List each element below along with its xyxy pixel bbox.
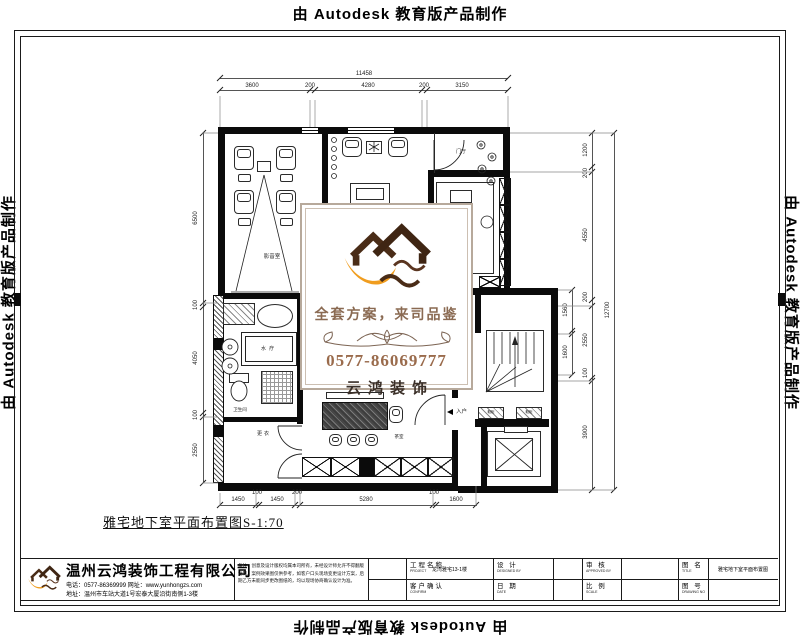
dim-text: 3600 — [239, 83, 265, 89]
theater-recliner — [234, 146, 254, 170]
titleblock-line — [20, 600, 778, 601]
registration-mark-right — [778, 293, 785, 306]
dim-line — [572, 290, 573, 375]
stone-tea-table — [322, 402, 388, 430]
armchair — [342, 137, 362, 157]
wall — [218, 293, 303, 299]
stairwell — [486, 330, 544, 392]
dim-text: 11458 — [351, 71, 377, 77]
theater-recliner — [276, 146, 296, 170]
room-label-entry: 入户 — [456, 407, 467, 415]
company-logo — [339, 216, 434, 300]
dim-line — [614, 133, 615, 490]
titleblock-line — [493, 558, 494, 600]
fireplace-inner — [356, 188, 384, 200]
field-sub: SCALE — [586, 590, 607, 594]
tv-unit — [450, 190, 472, 203]
tea-chair — [365, 434, 378, 446]
dim-text: 100 — [193, 292, 199, 318]
cad-drawing-page: 由 Autodesk 教育版产品制作 由 Autodesk 教育版产品制作 由 … — [0, 0, 800, 640]
wall — [218, 127, 225, 295]
company-phone: 电话：0577-86369999 网址：www.yunhongzs.com — [66, 580, 202, 589]
dim-text: 1600 — [563, 339, 569, 365]
wall — [475, 295, 481, 333]
field-sub: CONFIRM — [410, 590, 444, 594]
dim-text: 5280 — [353, 497, 379, 503]
dim-text: 100 — [421, 490, 447, 496]
field-label: 比 例 — [586, 583, 607, 590]
wall — [218, 417, 303, 422]
titleblock-line — [553, 558, 554, 600]
dim-text: 100 — [244, 490, 270, 496]
ottoman — [238, 218, 251, 226]
watermark-inner-frame: 全套方案，来司品鉴 0577-86069777 云鸿装饰 — [305, 208, 468, 385]
titleblock-line — [621, 558, 622, 600]
registration-mark-left — [14, 293, 21, 306]
elevator-car — [495, 438, 533, 471]
field-sub: TITLE — [682, 569, 703, 573]
room-label-tea: 茶室 — [384, 434, 414, 440]
tea-chair — [329, 434, 342, 446]
field-scale: 比 例 SCALE — [586, 583, 607, 594]
side-table — [366, 141, 382, 154]
dim-text: 200 — [411, 83, 437, 89]
field-project-value: 龙湾雅宅13-1楼 — [406, 566, 493, 573]
field-label: 审 核 — [586, 562, 611, 569]
shower-floor — [261, 371, 293, 404]
autodesk-banner-top: 由 Autodesk 教育版产品制作 — [0, 3, 800, 24]
toilet-tank — [229, 373, 249, 383]
dim-line — [220, 78, 508, 79]
wall — [213, 425, 224, 437]
dim-line — [203, 133, 204, 483]
laundry-counter — [223, 303, 255, 325]
flourish-ornament — [317, 326, 457, 348]
watermark-box: 全套方案，来司品鉴 0577-86069777 云鸿装饰 — [300, 203, 473, 390]
cabinet-x — [401, 457, 428, 477]
shoe-cabinet-label: 鞋柜 — [478, 410, 504, 415]
field-title: 图 名 TITLE — [682, 562, 703, 573]
field-drawing-no: 图 号 DRAWING NO — [682, 583, 705, 594]
theater-recliner — [276, 190, 296, 214]
field-sub: DRAWING NO — [682, 590, 705, 594]
room-label-bath: 卫生间 — [220, 407, 260, 413]
titleblock-line — [406, 558, 407, 600]
ottoman — [238, 174, 251, 182]
projector — [257, 161, 271, 172]
dim-text: 1450 — [225, 497, 251, 503]
dim-text: 200 — [284, 490, 310, 496]
dim-line — [220, 90, 508, 91]
dim-text: 12700 — [605, 297, 611, 323]
dim-text: 100 — [583, 360, 589, 386]
dim-text: 4050 — [193, 345, 199, 371]
field-sub: APPROVED BY — [586, 569, 611, 573]
elevator-door — [504, 426, 528, 433]
titleblock-line — [20, 558, 778, 559]
titleblock-line — [582, 558, 583, 600]
titleblock-line — [368, 558, 369, 600]
wall — [428, 170, 510, 177]
wall — [551, 288, 558, 493]
room-label-spa: 水疗 — [253, 345, 285, 352]
company-address: 地址：温州市车站大道1号宏泰大厦沿街南侧1-3楼 — [66, 589, 198, 598]
dim-text: 3900 — [583, 419, 589, 445]
watermark-slogan: 全套方案，来司品鉴 — [306, 304, 467, 324]
entry-arrow-icon — [447, 409, 453, 415]
dim-line — [220, 505, 477, 506]
wall — [470, 288, 558, 295]
dim-text: 100 — [193, 402, 199, 428]
field-label: 客户确认 — [410, 583, 444, 590]
shoe-cabinet-label: 鞋柜 — [516, 410, 542, 415]
window-symbol — [348, 127, 394, 134]
field-approver: 审 核 APPROVED BY — [586, 562, 611, 573]
field-label: 设 计 — [497, 562, 521, 569]
room-label-dressing: 更衣 — [248, 430, 280, 437]
dim-text: 4550 — [583, 222, 589, 248]
ottoman — [280, 218, 293, 226]
window-symbol — [302, 127, 318, 134]
wall — [322, 133, 328, 205]
drawing-caption: 雅宅地下室平面布置图S-1:70 — [103, 512, 284, 531]
field-designer: 设 计 DESIGNED BY — [497, 562, 521, 573]
dim-text: 1600 — [443, 497, 469, 503]
cabinet-x — [302, 457, 331, 477]
partition-line — [434, 133, 435, 173]
field-sub: DATE — [497, 590, 518, 594]
room-label-foyer: 门厅 — [446, 148, 476, 155]
bathtub — [257, 304, 293, 328]
field-sub: DESIGNED BY — [497, 569, 521, 573]
dim-text: 2550 — [193, 437, 199, 463]
field-date: 日 期 DATE — [497, 583, 518, 594]
tea-chair — [347, 434, 360, 446]
field-label: 图 名 — [682, 562, 703, 569]
watermark-brand: 云鸿装饰 — [306, 377, 467, 398]
watermark-phone: 0577-86069777 — [306, 351, 467, 371]
ottoman — [280, 174, 293, 182]
dim-text: 200 — [583, 160, 589, 186]
dim-text: 4280 — [355, 83, 381, 89]
field-title-value: 雅宅地下室平面布置图 — [708, 566, 778, 573]
titleblock-notes: 备注：创意及设计版权均属本司所有，未经设计师允许不得翻版复制。案例效果图仅供参考… — [238, 562, 364, 598]
dim-text: 1450 — [264, 497, 290, 503]
dim-text: 2550 — [583, 327, 589, 353]
dim-line — [592, 133, 593, 490]
field-confirm: 客户确认 CONFIRM — [410, 583, 444, 594]
titleblock-line — [678, 558, 679, 600]
cabinet-x — [331, 457, 360, 477]
dim-text: 200 — [583, 284, 589, 310]
field-label: 图 号 — [682, 583, 705, 590]
titleblock-line — [368, 579, 778, 580]
cabinet-x — [374, 457, 401, 477]
cabinet-x — [499, 178, 511, 205]
armchair — [388, 137, 408, 157]
field-label: 日 期 — [497, 583, 518, 590]
company-name: 温州云鸿装饰工程有限公司 — [66, 560, 252, 581]
room-label-theater: 影音室 — [250, 252, 294, 260]
dim-text: 3150 — [449, 83, 475, 89]
wall — [213, 338, 224, 350]
titleblock-line — [708, 558, 709, 600]
wall — [360, 457, 374, 477]
dim-text: 200 — [297, 83, 323, 89]
dim-text: 6500 — [193, 205, 199, 231]
cabinet-x — [499, 205, 511, 232]
dim-text: 1560 — [563, 297, 569, 323]
cabinet-x — [479, 276, 501, 288]
autodesk-banner-bottom: 由 Autodesk 教育版产品制作 — [0, 617, 800, 638]
cabinet-x — [499, 232, 511, 259]
theater-recliner — [234, 190, 254, 214]
wall — [458, 486, 558, 493]
company-logo-small — [26, 562, 62, 595]
tea-chair — [389, 406, 403, 423]
cabinet-x — [428, 457, 454, 477]
